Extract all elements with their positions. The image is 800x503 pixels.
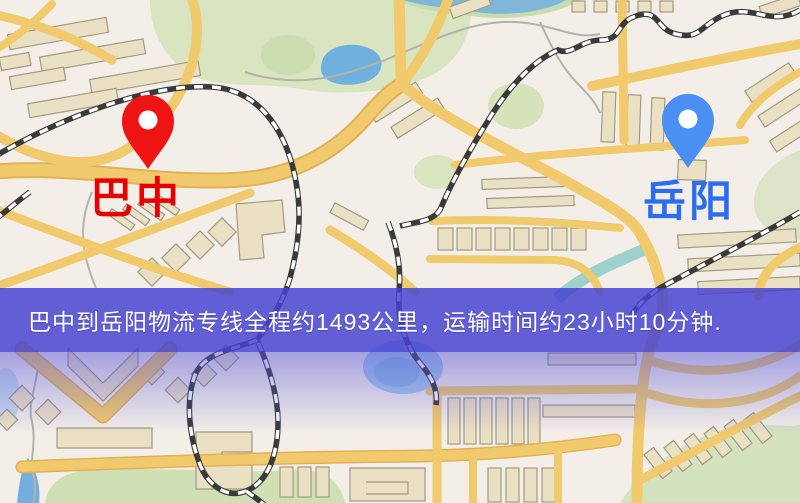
origin-city-label: 巴中 xyxy=(90,178,182,221)
route-banner: 巴中到岳阳物流专线全程约1493公里，运输时间约23小时10分钟. xyxy=(0,288,800,352)
route-map: 巴中到岳阳物流专线全程约1493公里，运输时间约23小时10分钟. 巴中 岳阳 xyxy=(0,0,800,503)
destination-city-label: 岳阳 xyxy=(643,181,735,224)
route-banner-text: 巴中到岳阳物流专线全程约1493公里，运输时间约23小时10分钟. xyxy=(0,303,722,337)
map-canvas xyxy=(0,0,800,503)
origin-pin-hole xyxy=(139,111,158,130)
destination-pin-hole xyxy=(679,110,698,129)
